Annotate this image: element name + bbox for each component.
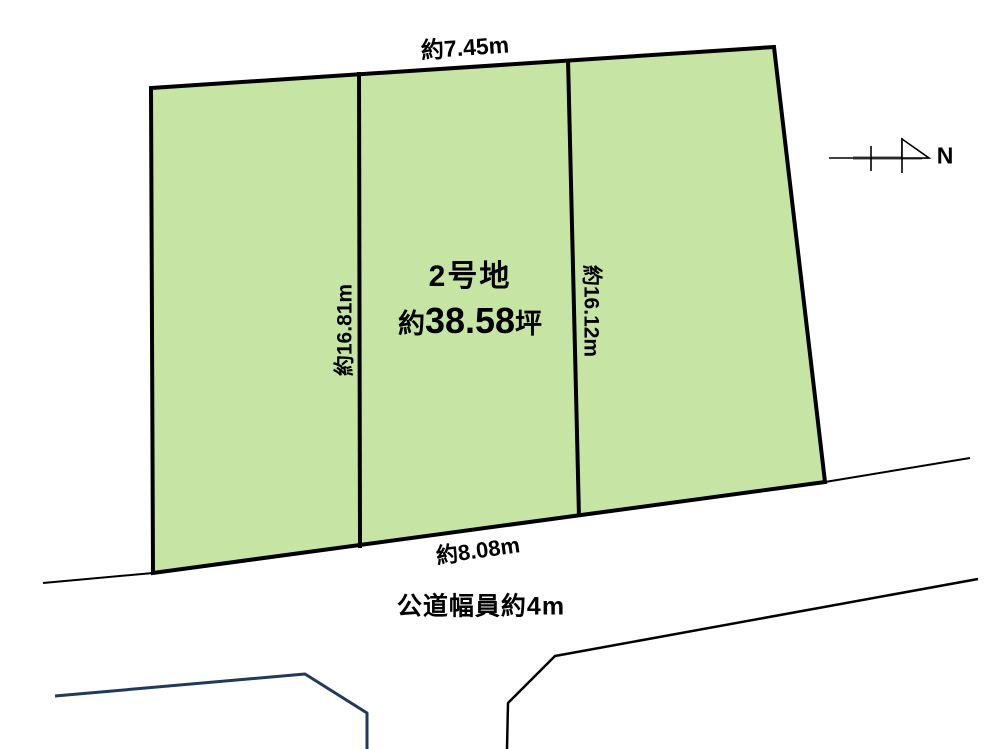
right-depth-label: 約16.12m	[581, 265, 602, 357]
top-width-label: 約7.45m	[420, 33, 510, 62]
site-plan-diagram	[0, 0, 1001, 749]
road-edge-lower	[507, 579, 978, 749]
plot-divider-left	[359, 72, 360, 548]
neighbor-boundary-line	[55, 674, 367, 749]
lot-area-prefix: 約	[398, 309, 425, 339]
north-label: N	[937, 145, 954, 168]
road-edge-upper-right	[825, 458, 970, 482]
left-depth-label: 約16.81m	[335, 284, 356, 376]
lot-area-label: 約38.58坪	[398, 303, 542, 339]
lot-area-unit: 坪	[515, 309, 542, 339]
site-plan-canvas: 約7.45m 2号地 約38.58坪 約16.81m 約16.12m 約8.08…	[0, 0, 1001, 749]
road-edge-upper-left	[43, 573, 153, 583]
lot-area-value: 38.58	[425, 300, 515, 341]
road-width-label: 公道幅員約4m	[397, 595, 565, 620]
north-compass-icon	[829, 138, 929, 173]
compass-flag-triangle	[902, 139, 929, 158]
lot-name-label: 2号地	[429, 262, 512, 292]
